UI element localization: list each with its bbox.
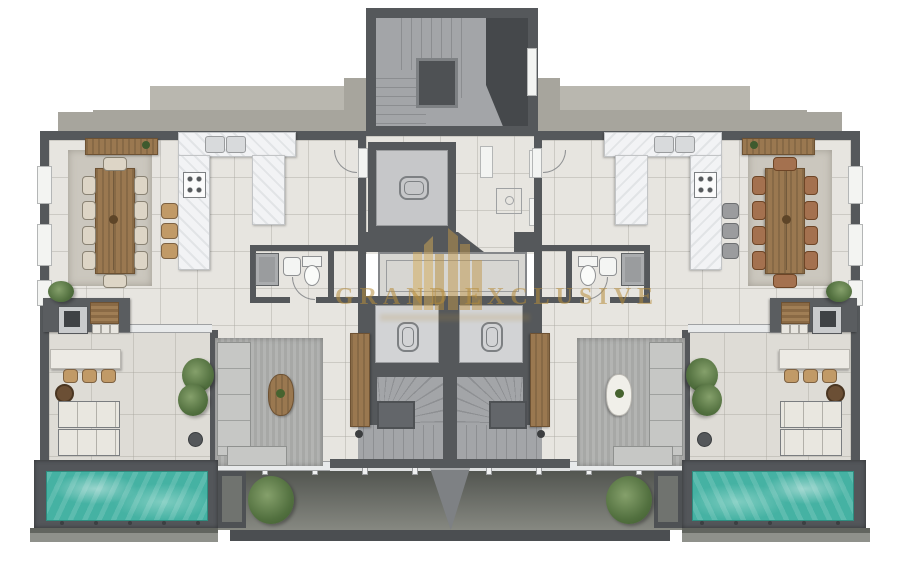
terrace-shrub bbox=[48, 281, 74, 302]
dining-chair bbox=[804, 201, 818, 220]
cooktop bbox=[183, 172, 206, 198]
deck-fixing bbox=[94, 521, 98, 525]
sun-lounger bbox=[58, 401, 120, 428]
wc-wall bbox=[536, 297, 584, 303]
sideboard-plant bbox=[142, 141, 150, 149]
dining-chair bbox=[103, 157, 127, 171]
elevator-door-symbol bbox=[397, 322, 419, 352]
outdoor-bar-counter bbox=[779, 349, 850, 369]
tower-stair-void bbox=[416, 58, 458, 108]
dining-chair bbox=[82, 176, 96, 195]
bbq-stool-cushion bbox=[110, 324, 119, 334]
dining-chair bbox=[773, 274, 797, 288]
coffee-table-plant bbox=[615, 389, 624, 398]
kitchen-return-leg bbox=[252, 155, 285, 225]
dining-chair bbox=[773, 157, 797, 171]
stair-spine-wall bbox=[443, 368, 457, 468]
grill-rack bbox=[781, 302, 810, 324]
table-centerpiece bbox=[782, 215, 791, 224]
dining-chair bbox=[752, 201, 766, 220]
dining-chair bbox=[103, 274, 127, 288]
deck-fixing bbox=[768, 521, 772, 525]
bbq-stool-cushion bbox=[799, 324, 808, 334]
lamp-table bbox=[188, 432, 203, 447]
core-band-wall bbox=[366, 232, 458, 252]
dining-chair bbox=[804, 251, 818, 270]
dining-chair bbox=[82, 201, 96, 220]
outdoor-bar-stool bbox=[82, 369, 97, 383]
dining-chair bbox=[134, 251, 148, 270]
sun-lounger bbox=[780, 401, 842, 428]
skylight-void bbox=[378, 252, 527, 300]
grill-rack bbox=[90, 302, 119, 324]
deck-fixing bbox=[162, 521, 166, 525]
dining-chair bbox=[752, 176, 766, 195]
kitchen-bar-stool bbox=[161, 243, 178, 259]
window bbox=[37, 224, 52, 266]
dining-chair bbox=[752, 251, 766, 270]
kitchen-sink-basin bbox=[654, 136, 674, 153]
window bbox=[848, 166, 863, 204]
pool bbox=[692, 471, 854, 521]
deck-fixing bbox=[836, 521, 840, 525]
wc-wall bbox=[328, 251, 334, 303]
tv-wardrobe bbox=[350, 333, 370, 427]
deck-fixing bbox=[734, 521, 738, 525]
dining-chair bbox=[134, 176, 148, 195]
terrace-shrub bbox=[826, 281, 852, 302]
unit-right bbox=[534, 0, 870, 563]
wc-wall bbox=[566, 251, 572, 303]
dining-chair bbox=[134, 226, 148, 245]
lobby-duct bbox=[480, 146, 493, 178]
outdoor-bar-stool bbox=[101, 369, 116, 383]
wc-sink bbox=[283, 257, 301, 276]
washer-cabinet bbox=[255, 253, 279, 286]
floor-plan-stage: GRAND EXCLUSIVE bbox=[0, 0, 900, 563]
unit-entry-door bbox=[358, 148, 368, 178]
wc-wall bbox=[610, 297, 650, 303]
wc-wall bbox=[536, 245, 650, 251]
elevator-door-symbol bbox=[399, 176, 429, 200]
table-centerpiece bbox=[109, 215, 118, 224]
coffee-table-plant bbox=[276, 389, 285, 398]
deck-fixing bbox=[60, 521, 64, 525]
window bbox=[848, 224, 863, 266]
tv-wardrobe bbox=[530, 333, 550, 427]
dining-chair bbox=[134, 201, 148, 220]
bbq-stool-cushion bbox=[781, 324, 790, 334]
bbq-stool-cushion bbox=[790, 324, 799, 334]
bbq-stool-cushion bbox=[92, 324, 101, 334]
sofa-chaise bbox=[613, 446, 673, 466]
sideboard-plant bbox=[750, 141, 758, 149]
floor-lamp bbox=[355, 430, 363, 438]
outdoor-bar-stool bbox=[63, 369, 78, 383]
sun-lounger bbox=[58, 429, 120, 456]
kitchen-sink-basin bbox=[675, 136, 695, 153]
sofa bbox=[649, 342, 683, 456]
window bbox=[37, 166, 52, 204]
washer-cabinet bbox=[621, 253, 645, 286]
outdoor-bar-stool bbox=[784, 369, 799, 383]
sliding-glass-door bbox=[688, 324, 782, 333]
dining-chair bbox=[804, 226, 818, 245]
terrace-tree bbox=[692, 384, 722, 416]
elevator-door-symbol bbox=[481, 322, 503, 352]
lobby-floor-symbol-dot bbox=[505, 196, 514, 205]
cooktop bbox=[694, 172, 717, 198]
kitchen-sink-basin bbox=[205, 136, 225, 153]
kitchen-bar-stool bbox=[161, 223, 178, 239]
toilet-bowl bbox=[580, 265, 596, 286]
kitchen-bar-stool bbox=[722, 223, 739, 239]
bbq-grill-inner bbox=[64, 311, 80, 327]
sliding-glass-door bbox=[118, 324, 212, 333]
wc-wall bbox=[250, 297, 290, 303]
lamp-table bbox=[697, 432, 712, 447]
terrace-tree bbox=[178, 384, 208, 416]
pool bbox=[46, 471, 208, 521]
kitchen-bar-stool bbox=[161, 203, 178, 219]
outdoor-bar-stool bbox=[803, 369, 818, 383]
sun-lounger bbox=[780, 429, 842, 456]
kitchen-return-leg bbox=[615, 155, 648, 225]
wc-sink bbox=[599, 257, 617, 276]
stair-void-right bbox=[489, 401, 527, 429]
deck-fixing bbox=[802, 521, 806, 525]
kitchen-sink-basin bbox=[226, 136, 246, 153]
wc-wall bbox=[250, 245, 364, 251]
deck-fixing bbox=[196, 521, 200, 525]
bbq-grill-inner bbox=[820, 311, 836, 327]
bbq-stool-cushion bbox=[101, 324, 110, 334]
outdoor-bar-stool bbox=[822, 369, 837, 383]
dining-chair bbox=[804, 176, 818, 195]
floor-lamp bbox=[537, 430, 545, 438]
outdoor-bar-counter bbox=[50, 349, 121, 369]
unit-bottom-wall bbox=[534, 459, 570, 468]
unit-left bbox=[30, 0, 366, 563]
sofa bbox=[217, 342, 251, 456]
deck-fixing bbox=[700, 521, 704, 525]
dining-chair bbox=[752, 226, 766, 245]
dining-chair bbox=[82, 226, 96, 245]
dining-chair bbox=[82, 251, 96, 270]
wc-wall bbox=[316, 297, 364, 303]
deck-fixing bbox=[128, 521, 132, 525]
kitchen-bar-stool bbox=[722, 203, 739, 219]
unit-bottom-wall bbox=[330, 459, 366, 468]
unit-entry-door bbox=[532, 148, 542, 178]
stair-void-left bbox=[377, 401, 415, 429]
toilet-bowl bbox=[304, 265, 320, 286]
kitchen-bar-stool bbox=[722, 243, 739, 259]
sofa-chaise bbox=[227, 446, 287, 466]
